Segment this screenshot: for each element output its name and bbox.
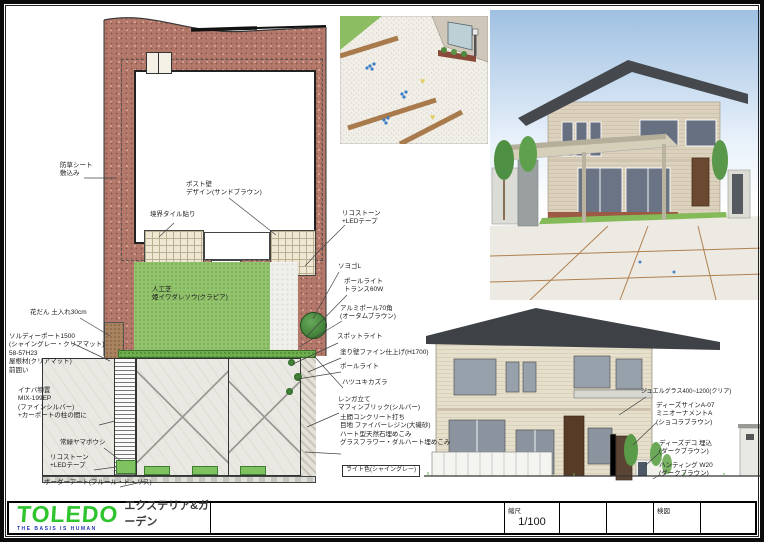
house-render-3d bbox=[490, 10, 764, 300]
shrub-symbol bbox=[294, 373, 302, 381]
driveway-panel-right bbox=[228, 358, 300, 476]
title-block-empty-cell bbox=[560, 503, 607, 533]
drawing-sheet: ♥ ♥ bbox=[0, 0, 764, 542]
label-boundary-tile: 境界タイル貼り bbox=[150, 211, 196, 219]
planting-box bbox=[116, 460, 136, 474]
scale-label: 縮尺 bbox=[508, 505, 521, 515]
label-border-art: ボーダーアート(フルール・ド・リス) bbox=[44, 479, 152, 487]
label-light-color: ライト色(シャイングレー) bbox=[342, 465, 420, 477]
department-label: エクステリア&ガーデン bbox=[124, 497, 210, 533]
shrub-symbol bbox=[288, 359, 295, 366]
label-post-wall: ポスト壁 デザイン(サンドブラウン) bbox=[186, 181, 262, 198]
terrace-recess bbox=[204, 232, 270, 260]
planting-box bbox=[192, 466, 218, 475]
scale-value: 1/100 bbox=[505, 516, 559, 528]
label-rico-stone-led: リコストーン +LEDテープ bbox=[342, 210, 381, 227]
check-label: 検図 bbox=[657, 505, 670, 515]
label-yamaboushi: 常緑ヤマボウシ bbox=[60, 439, 106, 447]
title-block-logo-cell: TOLEDO THE BASIS IS HUMAN エクステリア&ガーデン bbox=[9, 503, 211, 533]
label-pole-light-transformer: ポールライト トランス60W bbox=[344, 278, 383, 295]
brick-edge-strip bbox=[300, 358, 316, 476]
title-block: TOLEDO THE BASIS IS HUMAN エクステリア&ガーデン 縮尺… bbox=[7, 501, 757, 535]
label-brick-edging: レンガ立て マフィンブリック(シルバー) bbox=[338, 396, 420, 413]
title-block-empty-cell bbox=[607, 503, 654, 533]
label-carport: ソルディーポート1500 (シャイングレー・クリアマット) 58-57H23 屋… bbox=[9, 333, 104, 375]
label-spotlight: スポットライト bbox=[337, 333, 383, 341]
utility-meter-box bbox=[146, 52, 172, 74]
label-weed-sheet: 防草シート 敷込み bbox=[60, 162, 93, 179]
scale-cell: 縮尺 1/100 bbox=[505, 503, 560, 533]
label-aluminum-pole: アルミポール70角 (オータムブラウン) bbox=[340, 305, 396, 322]
label-concrete-slab: 土間コンクリート打ち 目地 ファイバーレジン(大磯砂) ハート型天然石埋めこみ … bbox=[340, 414, 450, 448]
label-jewel-glass: ジュエルグラス400~1200(クリア) bbox=[641, 389, 731, 397]
toledo-logo: TOLEDO bbox=[16, 504, 119, 525]
planting-box bbox=[240, 466, 266, 475]
storage-shed bbox=[114, 358, 136, 476]
terrace-tiles-left bbox=[144, 230, 204, 264]
label-hunting-w20: ハンティング W20 (ダークブラウン) bbox=[659, 462, 713, 479]
tree-symbol-soyogo bbox=[300, 312, 327, 339]
label-flower-bed: 花だん 土入れ30cm bbox=[30, 309, 87, 317]
check-cell: 検図 bbox=[654, 503, 701, 533]
shrub-symbol bbox=[286, 388, 293, 395]
label-artificial-turf: 人工芝 姫イワダレソウ(クラピア) bbox=[152, 286, 228, 303]
approach-path bbox=[270, 262, 298, 356]
artificial-turf-area bbox=[134, 262, 270, 352]
svg-text:♥: ♥ bbox=[430, 112, 435, 122]
title-block-empty-cell bbox=[211, 503, 505, 533]
label-soyogo-tree: ソヨゴL bbox=[338, 263, 361, 271]
label-rico-stone-led-2: リコストーン +LEDテープ bbox=[50, 454, 89, 471]
label-hatsuyuki-kazura: ハツユキカズラ bbox=[342, 379, 388, 387]
ground-cover-strip bbox=[118, 350, 316, 358]
driveway-panel-left bbox=[136, 358, 228, 476]
title-block-empty-cell bbox=[701, 503, 755, 533]
label-plaster-wall: 塗り壁ファイン仕上げ(H1700) bbox=[340, 349, 428, 357]
label-pole-light: ポールライト bbox=[340, 363, 379, 371]
label-deas-deco: ディーズデコ 埋込 (ダークブラウン) bbox=[659, 440, 712, 457]
label-deas-sign: ディーズサインA-07 ミニオーナメントA (ショコラブラウン) bbox=[656, 402, 714, 427]
label-inaba-shed: イナバ物置 MIX-199EP (ファインシルバー) +カーポートの柱の間に bbox=[18, 387, 87, 421]
svg-text:♥: ♥ bbox=[420, 76, 425, 86]
detail-inset-image: ♥ ♥ bbox=[340, 16, 488, 144]
planting-box bbox=[144, 466, 170, 475]
